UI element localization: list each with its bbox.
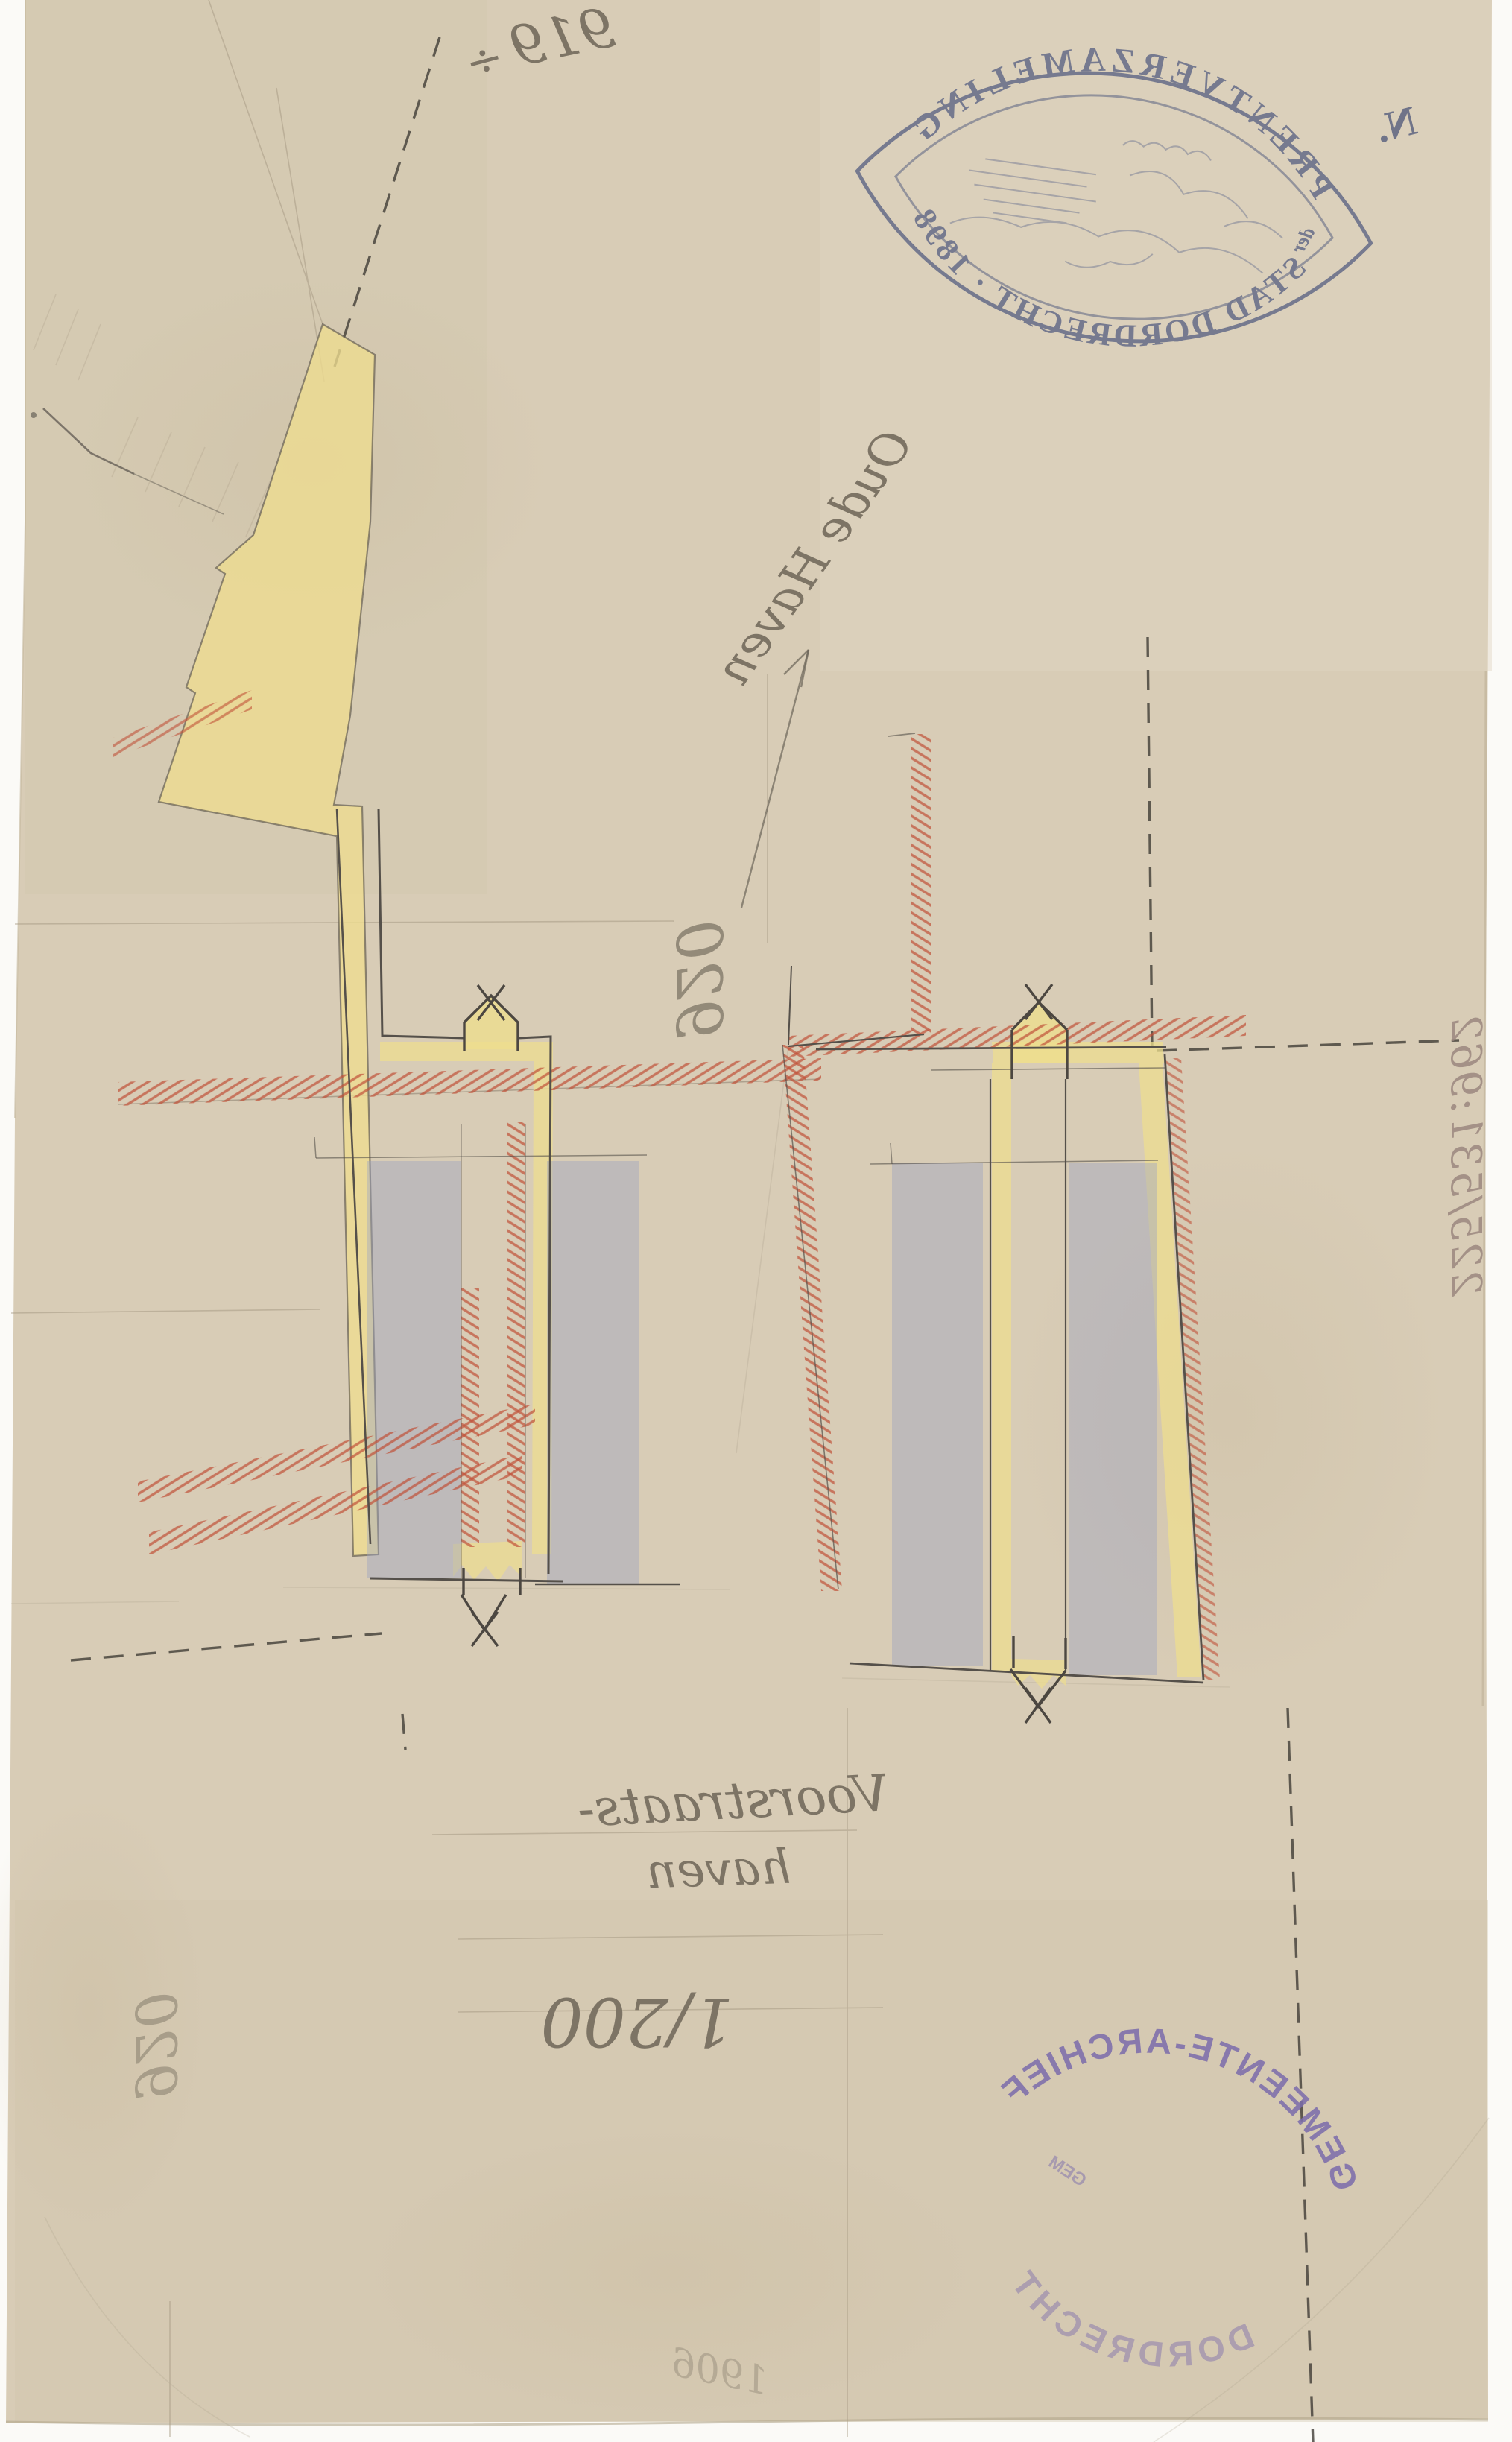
drawing-canvas: 919 ÷ Oude Haven 920 Voorstraats- haven … xyxy=(0,0,1512,2442)
pencil-dot xyxy=(31,412,37,418)
masonry-blue-left xyxy=(367,1161,461,1578)
bottom-left-number-annotation: 920 xyxy=(122,1992,189,2100)
voorstraatshaven-label-line2: haven xyxy=(645,1840,792,1900)
center-number-annotation: 920 xyxy=(662,920,735,1040)
red-hatch-channel-right xyxy=(507,1122,525,1547)
right-yellow-left-leg xyxy=(992,1063,1011,1671)
inventory-number-annotation: 225/531:962 xyxy=(1441,1013,1490,1297)
right-red-hatch-vertical xyxy=(911,734,931,1034)
scale-label: 1/200 xyxy=(540,1982,733,2060)
right-masonry-blue-left xyxy=(892,1163,983,1666)
masonry-blue-right xyxy=(547,1161,639,1584)
archival-drawing-scan: 919 ÷ Oude Haven 920 Voorstraats- haven … xyxy=(0,0,1512,2442)
red-hatch-channel-left xyxy=(461,1288,479,1547)
right-masonry-blue-right xyxy=(1069,1163,1157,1675)
